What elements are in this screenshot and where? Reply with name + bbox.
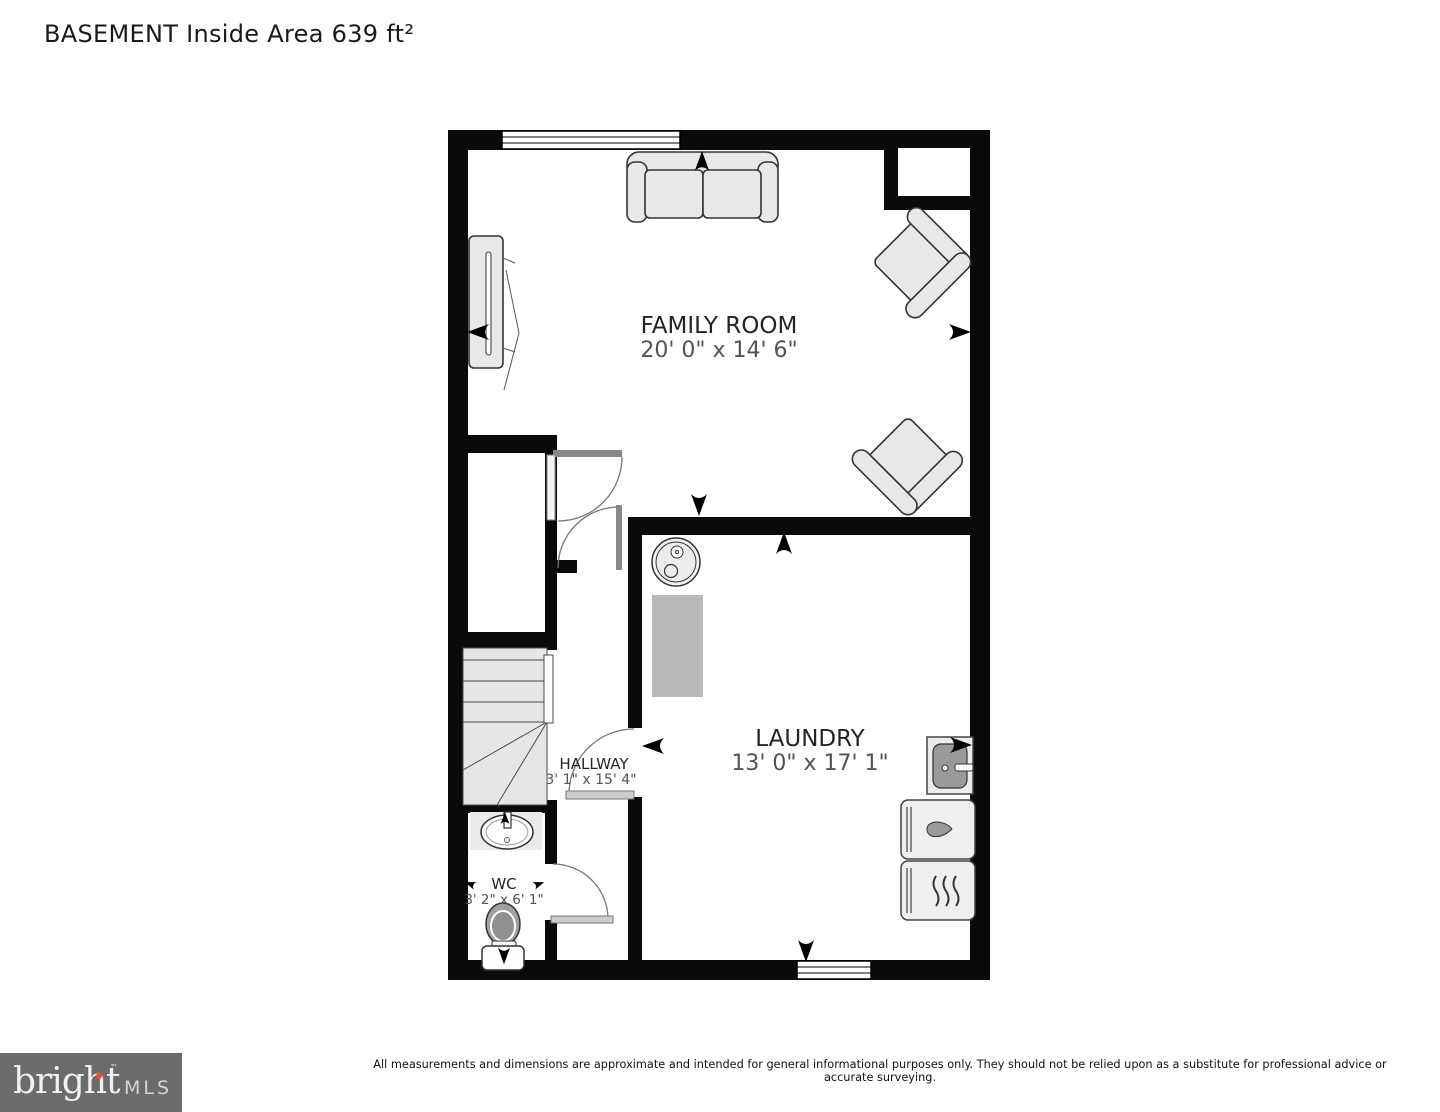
door-arc-icon: [558, 507, 619, 568]
window-icon: [502, 131, 680, 149]
wall-left: [448, 130, 468, 980]
direction-arrow-icon: [691, 494, 707, 516]
room-label-laundry: LAUNDRY: [755, 726, 865, 752]
washer-icon: [901, 800, 975, 859]
direction-arrow-icon: [949, 324, 971, 340]
door-leaf: [616, 505, 622, 570]
dryer-icon: [901, 861, 975, 920]
door-arc-icon: [553, 864, 608, 919]
wall-wc-right-lower: [545, 920, 557, 967]
room-label-family-room: FAMILY ROOM: [641, 313, 798, 339]
door-leaf: [551, 916, 613, 923]
utility-chase: [898, 148, 970, 196]
counter-icon: [652, 595, 703, 697]
door-threshold: [553, 450, 622, 457]
floorplan-page: BASEMENT Inside Area 639 ft²: [0, 0, 1440, 1112]
direction-arrow-icon: [776, 532, 792, 554]
armchair-icon: [857, 204, 974, 321]
stairs-handrail: [544, 655, 553, 723]
disclaimer-text: All measurements and dimensions are appr…: [352, 1058, 1408, 1084]
wall-laundry-left-upper: [628, 517, 642, 728]
room-label-wc: WC: [491, 875, 516, 893]
wall-bottom: [448, 960, 990, 980]
tv-icon: [469, 236, 519, 390]
stairs-icon: [463, 648, 553, 805]
wall-wc-right-upper: [545, 800, 557, 864]
direction-arrow-icon: [798, 940, 814, 962]
wall-stairs-top: [448, 632, 557, 648]
room-dims-laundry: 13' 0" x 17' 1": [731, 751, 888, 776]
brightmls-logo: bright ✦ ™ MLS: [0, 1053, 182, 1112]
floorplan-drawing: FAMILY ROOM 20' 0" x 14' 6" LAUNDRY 13' …: [0, 0, 1440, 1112]
wall-laundry-top: [630, 517, 990, 535]
doors: [547, 450, 634, 923]
trademark-symbol: ™: [110, 1063, 118, 1072]
wall-laundry-left-lower: [628, 797, 642, 967]
logo-suffix-text: MLS: [124, 1077, 172, 1099]
window-icon: [797, 961, 871, 979]
direction-arrow-icon: [532, 878, 545, 889]
room-dims-wc: 3' 2" x 6' 1": [464, 892, 543, 908]
wall-familyroom-bottom: [448, 435, 557, 453]
door-leaf: [566, 791, 634, 799]
water-heater-icon: [652, 538, 700, 586]
direction-arrow-icon: [642, 738, 664, 754]
armchair-icon: [849, 401, 966, 518]
door-arc-icon: [558, 457, 622, 521]
room-label-hallway: HALLWAY: [559, 755, 629, 773]
room-dims-family-room: 20' 0" x 14' 6": [640, 338, 797, 363]
door-leaf: [547, 455, 555, 520]
wall-stub: [557, 560, 577, 573]
star-icon: ✦: [91, 1066, 108, 1088]
room-dims-hallway: 3' 1" x 15' 4": [545, 772, 636, 788]
